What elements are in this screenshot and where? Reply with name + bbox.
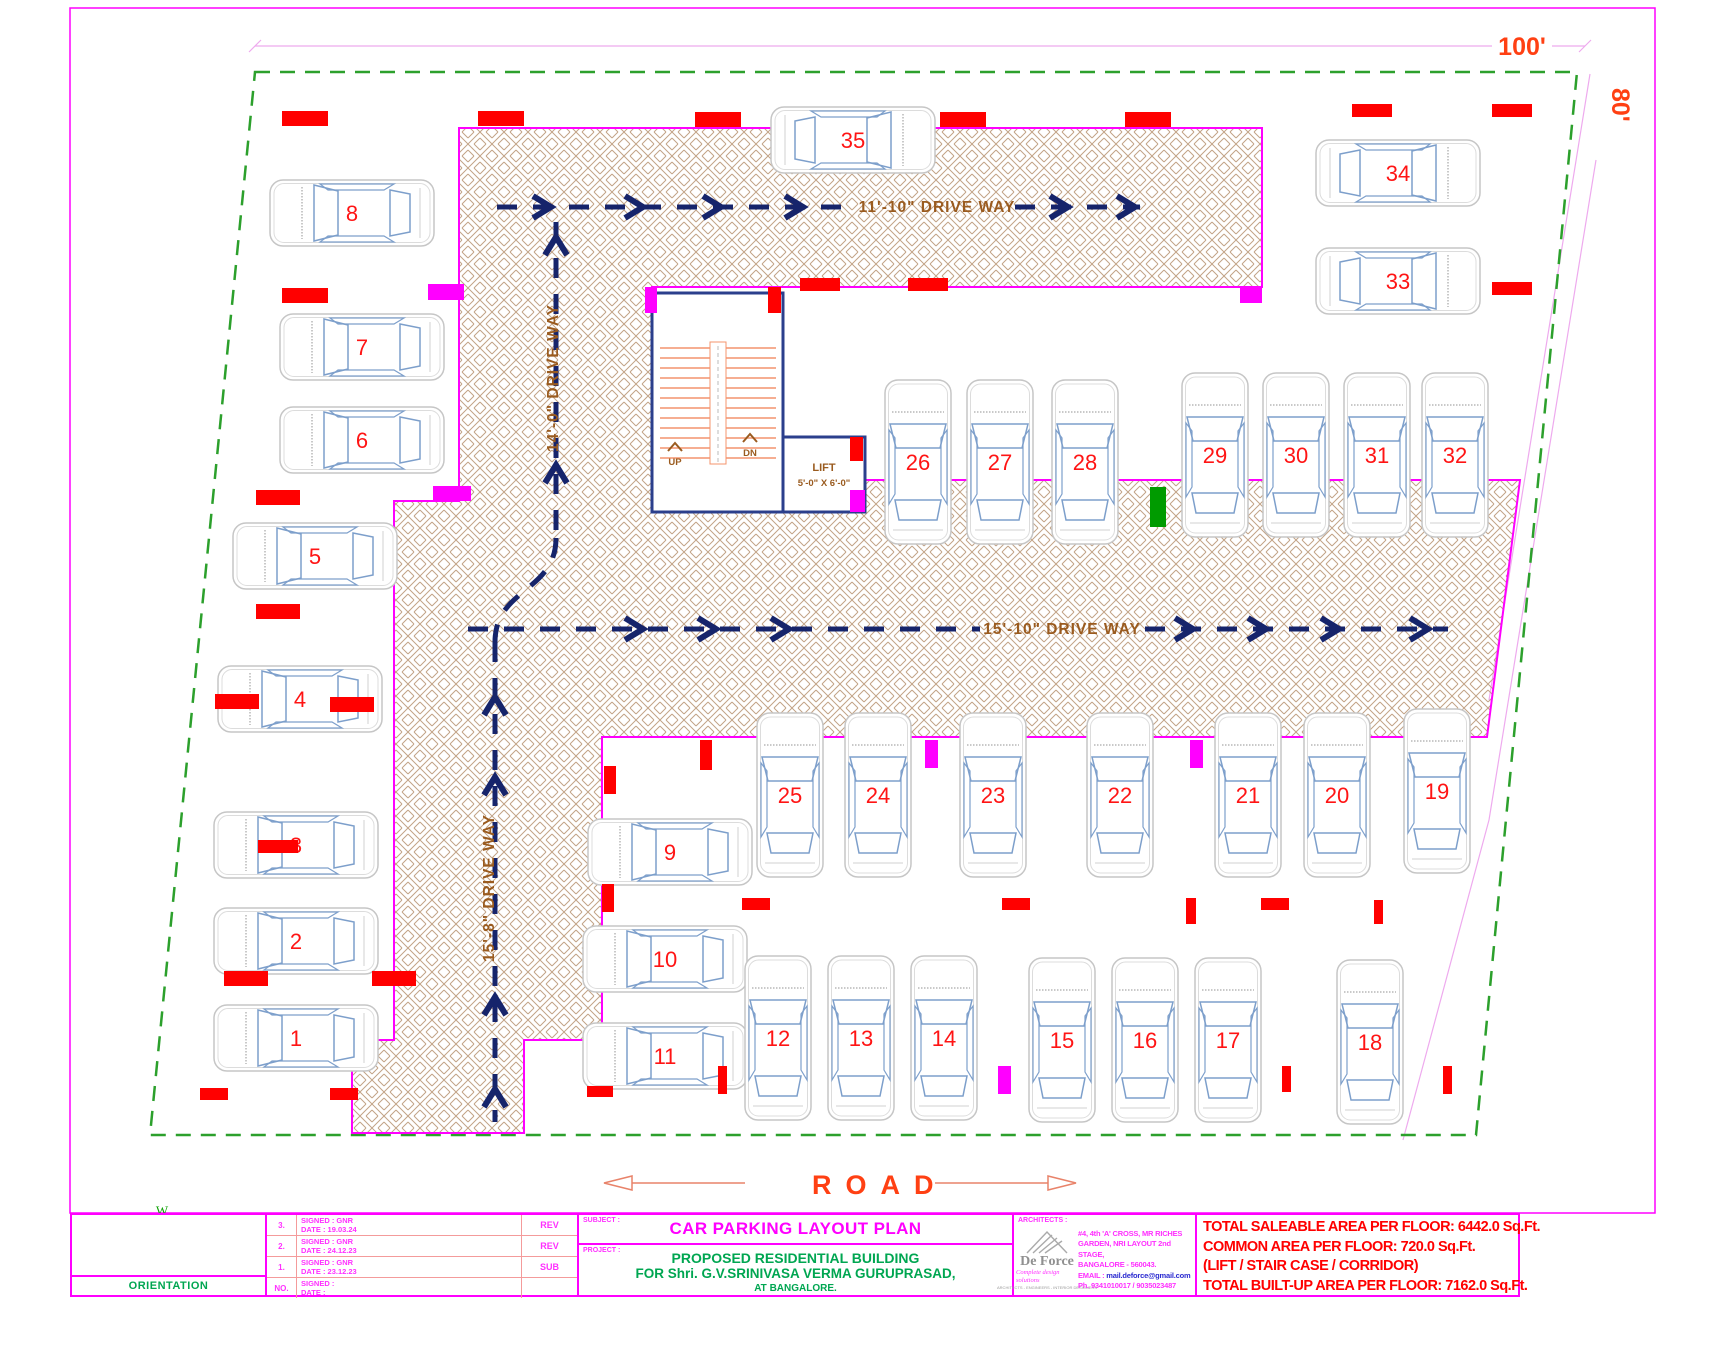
column-block (256, 604, 300, 619)
column-block (1443, 1066, 1452, 1094)
column-block (587, 1086, 613, 1097)
parking-spot-29: 29 (1182, 373, 1248, 537)
column-block (940, 112, 986, 127)
column-block (1261, 898, 1289, 910)
parking-plan-canvas: 100' 80' 11'-10" DRIVE WAY14'-0" DRIVE W… (0, 0, 1732, 1345)
parking-spot-17: 17 (1195, 958, 1261, 1122)
revision-number: 2. (267, 1236, 297, 1256)
area-totals-cell: TOTAL SALEABLE AREA PER FLOOR: 6442.0 Sq… (1197, 1215, 1518, 1295)
spot-number: 5 (309, 544, 321, 569)
firm-logo-icon (1025, 1229, 1069, 1255)
spot-number: 22 (1108, 783, 1132, 808)
column-block (330, 697, 374, 712)
column-block (998, 1066, 1011, 1094)
spot-number: 21 (1236, 783, 1260, 808)
spot-number: 2 (290, 929, 302, 954)
parking-spot-25: 25 (757, 713, 823, 877)
firm-logo: De Force Complete design solutions ARCHI… (1016, 1227, 1078, 1293)
parking-spot-32: 32 (1422, 373, 1488, 537)
spot-number: 18 (1358, 1030, 1382, 1055)
firm-name: De Force (1020, 1255, 1074, 1269)
orientation-label: ORIENTATION (72, 1275, 265, 1295)
column-block (908, 278, 948, 291)
driveway-label: 15'-8" DRIVE WAY (481, 814, 498, 962)
spot-number: 17 (1216, 1028, 1240, 1053)
parking-spot-33: 33 (1316, 248, 1480, 314)
column-block (428, 284, 464, 300)
drawing-sheet: 100' 80' 11'-10" DRIVE WAY14'-0" DRIVE W… (0, 0, 1732, 1345)
parking-spot-19: 19 (1404, 709, 1470, 873)
title-block: ORIENTATION 3.SIGNED : GNRDATE : 19.03.2… (70, 1213, 1520, 1297)
column-block (478, 111, 524, 126)
column-block (1492, 104, 1532, 117)
column-block (1282, 1066, 1291, 1092)
parking-spot-27: 27 (967, 380, 1033, 544)
column-block (1240, 287, 1262, 303)
column-block (695, 112, 741, 127)
column-block (1374, 900, 1383, 924)
spot-number: 7 (356, 335, 368, 360)
address-email: EMAIL : mail.deforce@gmail.com (1078, 1271, 1193, 1282)
total-area-line: COMMON AREA PER FLOOR: 720.0 Sq.Ft. (1203, 1238, 1512, 1258)
spot-number: 4 (294, 687, 306, 712)
parking-spot-10: 10 (583, 926, 747, 992)
spot-number: 25 (778, 783, 802, 808)
revision-signed-date: SIGNED :DATE : (297, 1278, 522, 1298)
column-block (1002, 898, 1030, 910)
revision-row: NO.SIGNED :DATE : (267, 1278, 577, 1298)
parking-spot-34: 34 (1316, 140, 1480, 206)
parking-spot-18: 18 (1337, 960, 1403, 1124)
architects-address: #4, 4th 'A' CROSS, MR RICHES GARDEN, NRI… (1078, 1227, 1193, 1293)
spot-number: 35 (841, 128, 865, 153)
column-block (282, 288, 328, 303)
parking-spot-13: 13 (828, 956, 894, 1120)
parking-spot-31: 31 (1344, 373, 1410, 537)
column-block (742, 898, 770, 910)
parking-spot-23: 23 (960, 713, 1026, 877)
column-block (700, 740, 712, 770)
project-line3: AT BANGALORE. (754, 1282, 837, 1295)
spot-number: 14 (932, 1026, 956, 1051)
parking-spot-12: 12 (745, 956, 811, 1120)
column-block (282, 111, 328, 126)
revision-type: SUB (522, 1257, 577, 1277)
column-block (1492, 282, 1532, 295)
revision-type: REV (522, 1215, 577, 1235)
spot-number: 24 (866, 783, 890, 808)
address-phone: Ph. 9341010017 / 9035023487 (1078, 1281, 1193, 1292)
project-row: PROJECT : PROPOSED RESIDENTIAL BUILDING … (579, 1245, 1012, 1299)
column-block (850, 490, 865, 512)
architects-cell: ARCHITECTS : De Force Complete design so… (1014, 1215, 1197, 1295)
spot-number: 1 (290, 1026, 302, 1051)
column-block (224, 971, 268, 986)
road-callout: ROAD (604, 1170, 1076, 1200)
firm-tagline: Complete design solutions (1016, 1269, 1078, 1285)
stair-case: UP DN (652, 293, 783, 512)
revision-signed-date: SIGNED : GNRDATE : 19.03.24 (297, 1215, 522, 1235)
driveway-label: 15'-10" DRIVE WAY (983, 621, 1141, 638)
column-block (1150, 487, 1166, 527)
spot-number: 19 (1425, 779, 1449, 804)
revision-row: 2.SIGNED : GNRDATE : 24.12.23REV (267, 1236, 577, 1257)
column-block (215, 694, 259, 709)
driveway-label: 14'-0" DRIVE WAY (545, 304, 562, 452)
revision-type (522, 1278, 577, 1298)
column-block (433, 486, 471, 501)
spot-number: 30 (1284, 443, 1308, 468)
parking-spot-15: 15 (1029, 958, 1095, 1122)
total-area-line: (LIFT / STAIR CASE / CORRIDOR) (1203, 1257, 1512, 1277)
spot-number: 13 (849, 1026, 873, 1051)
parking-spot-8: 8 (270, 180, 434, 246)
spot-number: 11 (654, 1044, 677, 1069)
spot-number: 9 (664, 840, 676, 865)
parking-spot-21: 21 (1215, 713, 1281, 877)
revision-type: REV (522, 1236, 577, 1256)
revision-number: 3. (267, 1215, 297, 1235)
spot-number: 20 (1325, 783, 1349, 808)
driveway-label: 11'-10" DRIVE WAY (859, 199, 1016, 216)
road-arrow-left-icon (604, 1176, 632, 1190)
column-block (718, 1066, 727, 1094)
revision-row: 3.SIGNED : GNRDATE : 19.03.24REV (267, 1215, 577, 1236)
column-block (258, 840, 298, 853)
column-block (1190, 740, 1203, 768)
parking-spot-20: 20 (1304, 713, 1370, 877)
drawing-title: CAR PARKING LAYOUT PLAN (670, 1219, 922, 1239)
area-totals: TOTAL SALEABLE AREA PER FLOOR: 6442.0 Sq… (1197, 1215, 1518, 1299)
parking-spot-30: 30 (1263, 373, 1329, 537)
parking-spot-24: 24 (845, 713, 911, 877)
spot-number: 26 (906, 450, 930, 475)
stair-up-label: UP (668, 457, 682, 468)
email-value: mail.deforce@gmail.com (1106, 1271, 1190, 1280)
orientation-cell: ORIENTATION (72, 1215, 267, 1295)
column-block (256, 490, 300, 505)
lift-size-label: 5'-0" X 6'-0" (798, 478, 851, 489)
spot-number: 16 (1133, 1028, 1157, 1053)
parking-spot-16: 16 (1112, 958, 1178, 1122)
subject-project-cell: SUBJECT : CAR PARKING LAYOUT PLAN PROJEC… (579, 1215, 1014, 1295)
parking-spot-7: 7 (280, 314, 444, 380)
address-line2: GARDEN, NRI LAYOUT 2nd STAGE, (1078, 1239, 1193, 1260)
total-area-line: TOTAL SALEABLE AREA PER FLOOR: 6442.0 Sq… (1203, 1218, 1512, 1238)
architects-body: De Force Complete design solutions ARCHI… (1016, 1227, 1193, 1293)
spot-number: 33 (1386, 269, 1410, 294)
parking-spot-1: 1 (214, 1005, 378, 1071)
stair-dn-label: DN (743, 448, 757, 459)
revision-number: NO. (267, 1278, 297, 1298)
parking-spot-14: 14 (911, 956, 977, 1120)
spot-number: 12 (766, 1026, 790, 1051)
subject-row: SUBJECT : CAR PARKING LAYOUT PLAN (579, 1215, 1012, 1245)
column-block (645, 287, 657, 313)
project-line1: PROPOSED RESIDENTIAL BUILDING (672, 1250, 920, 1266)
column-block (1186, 898, 1196, 924)
spot-number: 10 (653, 947, 677, 972)
column-block (602, 884, 614, 912)
architects-label: ARCHITECTS : (1018, 1217, 1067, 1224)
revision-row: 1.SIGNED : GNRDATE : 23.12.23SUB (267, 1257, 577, 1278)
parking-spot-26: 26 (885, 380, 951, 544)
total-area-line: TOTAL BUILT-UP AREA PER FLOOR: 7162.0 Sq… (1203, 1277, 1512, 1297)
dim-right-label: 80' (1606, 88, 1634, 122)
dim-top-label: 100' (1498, 33, 1546, 61)
spot-number: 31 (1365, 443, 1389, 468)
column-block (200, 1088, 228, 1100)
road-arrow-right-icon (1048, 1176, 1076, 1190)
spot-number: 34 (1386, 161, 1410, 186)
column-block (800, 278, 840, 291)
spot-number: 27 (988, 450, 1012, 475)
parking-spot-9: 9 (588, 819, 752, 885)
column-block (768, 287, 781, 313)
parking-spot-6: 6 (280, 407, 444, 473)
parking-spot-22: 22 (1087, 713, 1153, 877)
spot-number: 15 (1050, 1028, 1074, 1053)
column-block (1352, 104, 1392, 117)
column-block (330, 1088, 358, 1100)
lift-label: LIFT (812, 462, 835, 474)
column-block (1125, 112, 1171, 127)
subject-label: SUBJECT : (583, 1217, 620, 1224)
spot-number: 32 (1443, 443, 1467, 468)
project-line2: FOR Shri. G.V.SRINIVASA VERMA GURUPRASAD… (635, 1266, 955, 1282)
column-block (925, 740, 938, 768)
address-line1: #4, 4th 'A' CROSS, MR RICHES (1078, 1229, 1193, 1240)
spot-number: 6 (356, 428, 368, 453)
spot-number: 29 (1203, 443, 1227, 468)
revision-signed-date: SIGNED : GNRDATE : 23.12.23 (297, 1257, 522, 1277)
address-line3: BANGALORE - 560043. (1078, 1260, 1193, 1271)
revision-number: 1. (267, 1257, 297, 1277)
road-label: ROAD (812, 1170, 948, 1200)
revision-signed-date: SIGNED : GNRDATE : 24.12.23 (297, 1236, 522, 1256)
spot-number: 8 (346, 201, 358, 226)
spot-number: 23 (981, 783, 1005, 808)
parking-spot-2: 2 (214, 908, 378, 974)
column-block (372, 971, 416, 986)
parking-spot-5: 5 (233, 523, 397, 589)
column-block (604, 766, 616, 794)
column-block (850, 437, 863, 461)
project-label: PROJECT : (583, 1247, 620, 1254)
spot-number: 28 (1073, 450, 1097, 475)
revision-table-cell: 3.SIGNED : GNRDATE : 19.03.24REV2.SIGNED… (267, 1215, 579, 1295)
parking-spot-28: 28 (1052, 380, 1118, 544)
parking-spot-35: 35 (771, 107, 935, 173)
revision-table: 3.SIGNED : GNRDATE : 19.03.24REV2.SIGNED… (267, 1215, 577, 1295)
